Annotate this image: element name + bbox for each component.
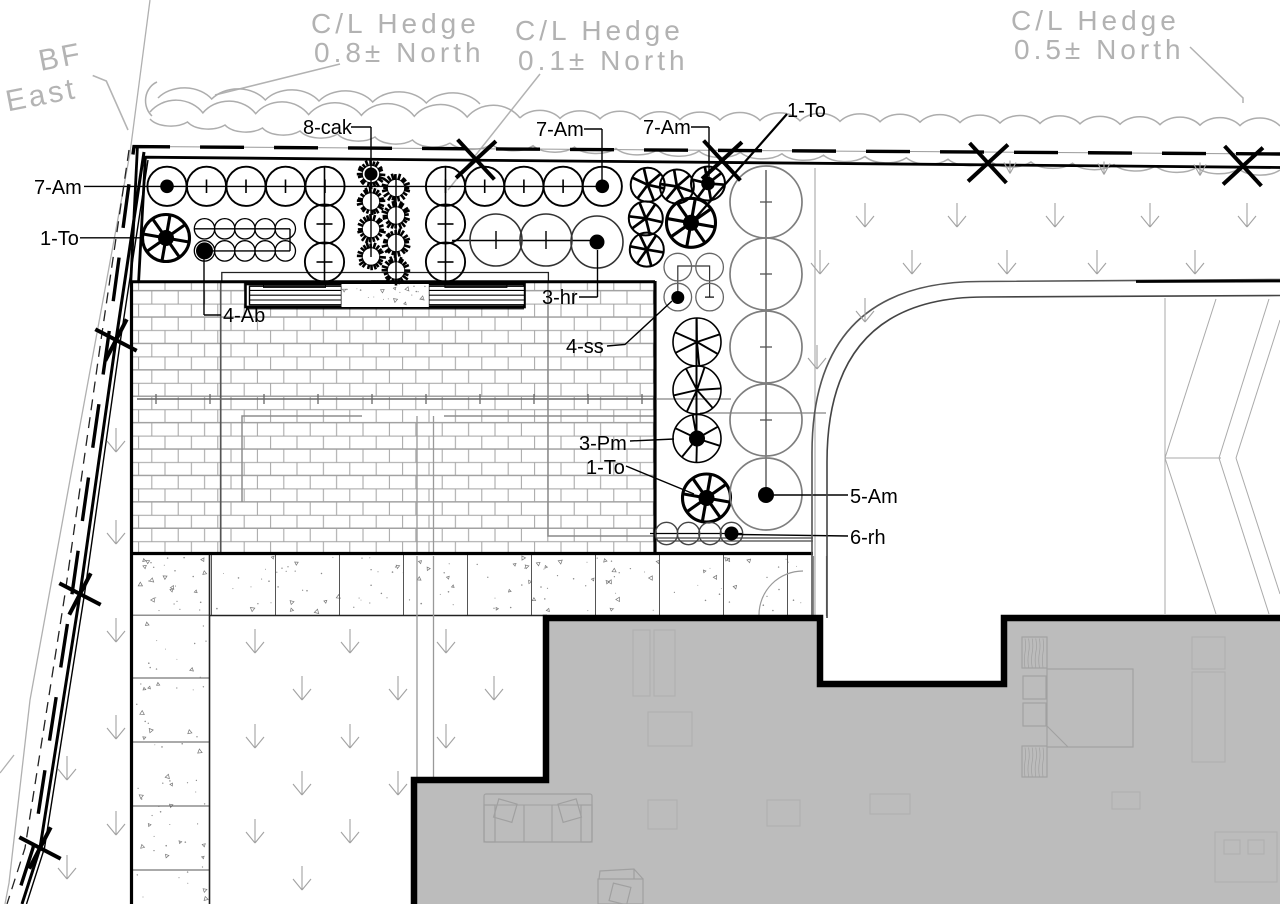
svg-text:3-Pm: 3-Pm bbox=[579, 433, 627, 455]
svg-text:0.5± North: 0.5± North bbox=[1014, 34, 1185, 65]
svg-text:5-Am: 5-Am bbox=[850, 486, 898, 508]
svg-text:C/L Hedge: C/L Hedge bbox=[1011, 5, 1180, 36]
svg-text:1-To: 1-To bbox=[40, 228, 79, 250]
svg-text:7-Am: 7-Am bbox=[34, 177, 82, 199]
svg-text:6-rh: 6-rh bbox=[850, 527, 886, 549]
svg-text:C/L Hedge: C/L Hedge bbox=[311, 8, 480, 39]
svg-text:1-To: 1-To bbox=[787, 100, 826, 122]
svg-text:C/L Hedge: C/L Hedge bbox=[515, 15, 684, 46]
svg-text:4-Ab: 4-Ab bbox=[223, 305, 265, 327]
svg-text:3-hr: 3-hr bbox=[542, 287, 578, 309]
svg-text:4-ss: 4-ss bbox=[566, 336, 604, 358]
svg-text:7-Am: 7-Am bbox=[643, 117, 691, 139]
svg-text:7-Am: 7-Am bbox=[536, 119, 584, 141]
svg-text:1-To: 1-To bbox=[586, 457, 625, 479]
svg-text:0.1± North: 0.1± North bbox=[518, 45, 689, 76]
svg-text:8-cak: 8-cak bbox=[303, 117, 353, 139]
